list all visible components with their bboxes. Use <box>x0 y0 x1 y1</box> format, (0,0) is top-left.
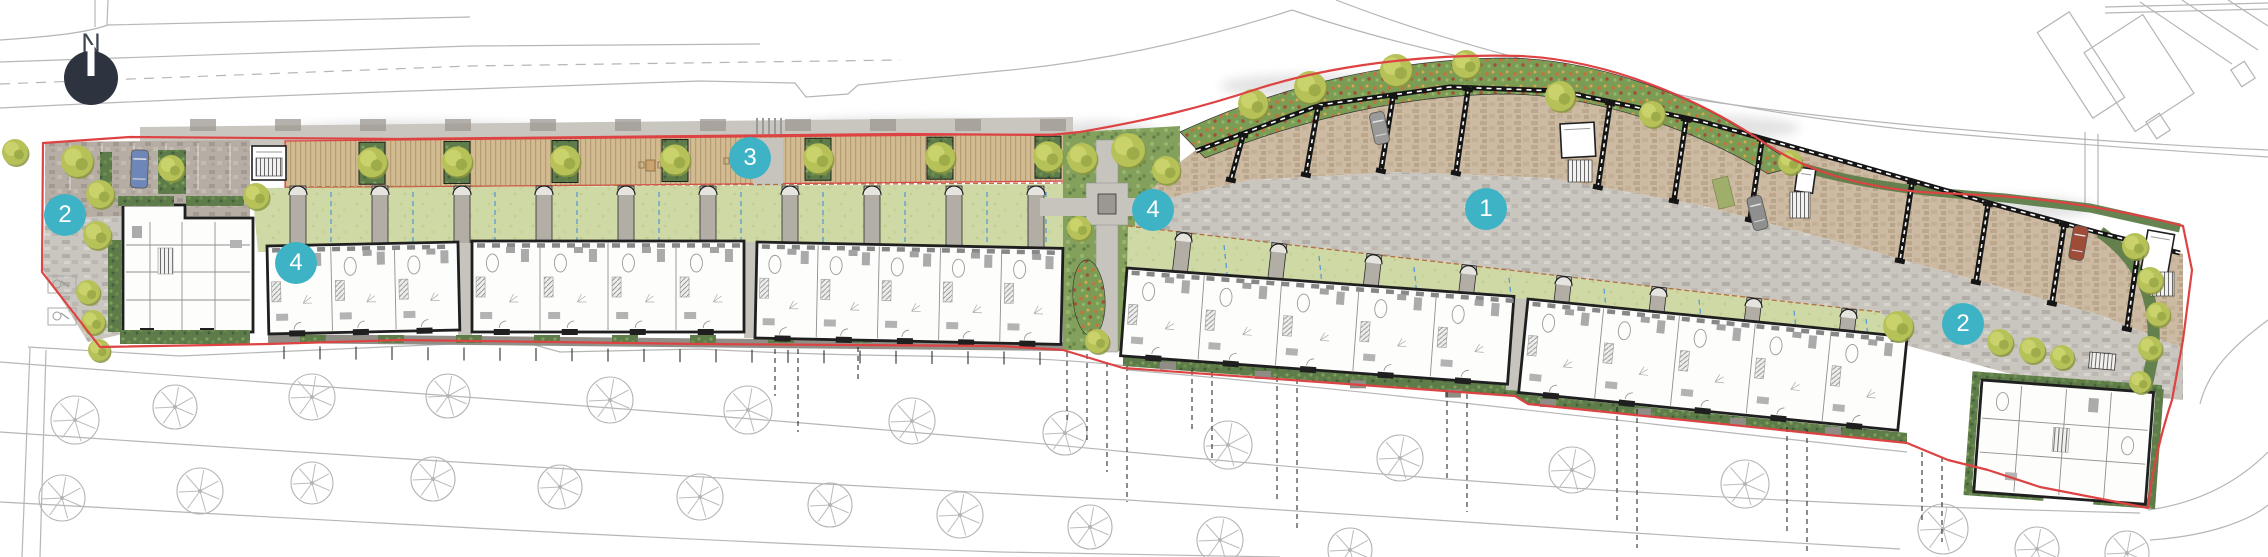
existing-tree-icon <box>1068 505 1112 549</box>
existing-tree-icon <box>2105 531 2149 557</box>
terrace-building <box>755 242 1063 347</box>
existing-tree-icon <box>291 462 333 504</box>
north-needle-icon <box>88 45 95 76</box>
existing-tree-icon <box>808 483 852 527</box>
existing-tree-icon <box>724 386 772 434</box>
existing-tree-icon <box>1204 421 1252 469</box>
marker-number: 4 <box>1146 196 1159 224</box>
existing-tree-icon <box>2015 527 2059 557</box>
tree-icon <box>88 339 112 363</box>
existing-tree-icon <box>1328 528 1372 557</box>
existing-tree-icon <box>289 374 335 420</box>
bin-store-pad <box>2089 352 2116 370</box>
plan-marker-4-west: 4 <box>275 242 317 284</box>
north-arrow: N <box>64 30 118 105</box>
existing-tree-icon <box>177 468 223 514</box>
plan-marker-3: 3 <box>729 137 771 179</box>
existing-tree-icon <box>1549 447 1595 493</box>
existing-tree-icon <box>1043 411 1087 455</box>
marker-number: 2 <box>58 201 71 229</box>
existing-tree-icon <box>1197 517 1243 557</box>
existing-tree-icon <box>1721 460 1769 508</box>
plan-marker-1: 1 <box>1465 188 1507 230</box>
plan-marker-4-mid: 4 <box>1132 189 1174 231</box>
site-plan-canvas <box>0 0 2268 557</box>
north-circle-icon <box>64 51 118 105</box>
existing-tree-icon <box>426 374 470 418</box>
site-plan: N 2 4 3 4 1 2 <box>0 0 2268 557</box>
tree-icon <box>2 139 30 167</box>
existing-tree-icon <box>937 492 983 538</box>
plan-marker-2-east: 2 <box>1942 303 1984 345</box>
terrace-building <box>472 241 744 335</box>
marker-number: 1 <box>1479 195 1492 223</box>
existing-tree-icon <box>153 385 197 429</box>
existing-tree-icon <box>1918 504 1968 554</box>
existing-tree-icon <box>411 457 455 501</box>
existing-tree-icon <box>677 474 723 520</box>
existing-tree-icon <box>587 377 633 423</box>
marker-number: 3 <box>743 144 756 172</box>
marker-number: 4 <box>289 249 302 277</box>
car-icon <box>130 150 148 189</box>
store-building <box>252 146 286 180</box>
neighbor-buildings <box>2037 12 2255 139</box>
marker-number: 2 <box>1956 310 1969 338</box>
existing-tree-icon <box>538 465 582 509</box>
plan-marker-2-west: 2 <box>44 194 86 236</box>
existing-tree-icon <box>1377 435 1423 481</box>
existing-tree-icon <box>889 398 935 444</box>
existing-tree-icon <box>39 475 85 521</box>
